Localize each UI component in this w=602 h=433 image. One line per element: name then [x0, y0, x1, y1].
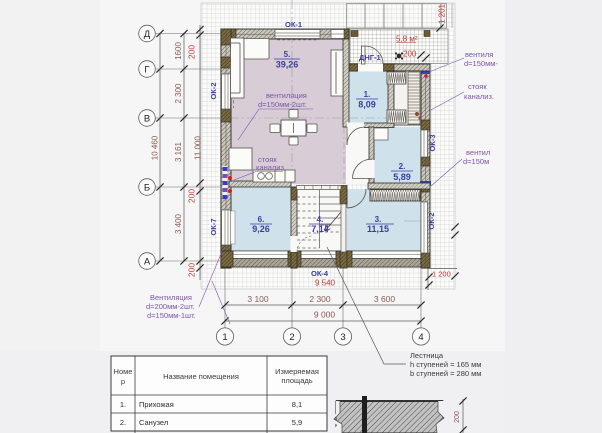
svg-text:Д: Д [144, 29, 151, 40]
svg-text:Название помещения: Название помещения [163, 372, 239, 381]
svg-text:4: 4 [418, 332, 423, 343]
svg-text:3.: 3. [375, 215, 382, 224]
svg-text:Б: Б [144, 183, 150, 194]
svg-text:9 540: 9 540 [315, 279, 336, 288]
svg-text:d=150мм-2шт.: d=150мм-2шт. [258, 100, 307, 109]
svg-text:200: 200 [454, 411, 461, 423]
svg-text:Санузел: Санузел [139, 418, 168, 427]
svg-text:2: 2 [289, 332, 294, 343]
svg-text:9 000: 9 000 [314, 310, 336, 320]
svg-text:1600: 1600 [174, 42, 183, 60]
svg-text:В: В [144, 114, 150, 125]
svg-text:ОК-7: ОК-7 [209, 218, 218, 235]
svg-text:1 200: 1 200 [432, 270, 451, 279]
svg-text:8,09: 8,09 [358, 100, 376, 110]
svg-text:3 400: 3 400 [174, 213, 183, 234]
svg-text:ОК-3: ОК-3 [428, 134, 437, 151]
svg-text:стояк: стояк [468, 82, 487, 91]
svg-text:10 460: 10 460 [151, 135, 160, 160]
svg-text:d=150м: d=150м [463, 157, 489, 166]
svg-text:канализ.: канализ. [464, 92, 494, 101]
svg-text:канализ: канализ [256, 163, 284, 172]
svg-text:b ступеней = 280 мм: b ступеней = 280 мм [410, 369, 481, 378]
svg-text:Лестница: Лестница [410, 351, 444, 360]
svg-text:р: р [121, 377, 125, 386]
svg-text:2 300: 2 300 [309, 294, 331, 304]
svg-text:h ступеней = 165 мм: h ступеней = 165 мм [410, 360, 481, 369]
svg-text:Номе: Номе [114, 367, 133, 376]
svg-text:площадь: площадь [281, 376, 312, 385]
svg-text:ДНГ-1: ДНГ-1 [359, 53, 381, 62]
svg-text:Г: Г [144, 65, 149, 76]
svg-text:1.: 1. [120, 400, 126, 409]
svg-text:ОК-2: ОК-2 [427, 212, 436, 229]
svg-text:2 300: 2 300 [174, 83, 183, 104]
svg-text:39,26: 39,26 [276, 60, 299, 70]
svg-text:ОК-4: ОК-4 [311, 269, 329, 278]
svg-text:200: 200 [187, 263, 197, 277]
svg-text:5,9: 5,9 [292, 418, 302, 427]
svg-text:6.: 6. [258, 215, 265, 224]
svg-text:2.: 2. [120, 418, 126, 427]
svg-text:1 201: 1 201 [438, 3, 447, 24]
svg-text:1: 1 [222, 332, 227, 343]
svg-text:вентил: вентил [466, 148, 490, 157]
svg-text:5.: 5. [284, 50, 291, 59]
svg-text:2.: 2. [399, 162, 406, 171]
svg-text:d=150мм-: d=150мм- [464, 59, 498, 68]
svg-text:5,89: 5,89 [393, 172, 411, 182]
svg-text:ОК-1: ОК-1 [285, 20, 302, 29]
svg-text:9,26: 9,26 [252, 224, 270, 234]
svg-text:5,8 м²: 5,8 м² [396, 35, 418, 44]
svg-text:Измеряемая: Измеряемая [275, 367, 319, 376]
svg-text:вентиляция: вентиляция [266, 91, 307, 100]
svg-text:Вентиляция: Вентиляция [150, 293, 192, 302]
svg-text:200: 200 [187, 189, 197, 203]
svg-text:вентиля: вентиля [465, 50, 493, 59]
svg-text:3 161: 3 161 [174, 141, 183, 162]
svg-text:200: 200 [403, 50, 417, 59]
svg-text:11 000: 11 000 [194, 136, 203, 160]
svg-text:11,15: 11,15 [367, 224, 389, 234]
svg-text:d=150мм-1шт.: d=150мм-1шт. [147, 311, 196, 320]
svg-text:8,1: 8,1 [292, 400, 302, 409]
svg-text:4.: 4. [317, 215, 324, 224]
svg-text:Прихожая: Прихожая [139, 400, 174, 409]
svg-text:А: А [144, 257, 151, 268]
svg-text:7,14: 7,14 [311, 224, 329, 234]
svg-text:3: 3 [340, 332, 345, 343]
svg-text:1.: 1. [364, 90, 371, 99]
svg-text:ОК-2: ОК-2 [209, 82, 218, 99]
svg-text:3 100: 3 100 [247, 294, 269, 304]
svg-text:3 600: 3 600 [374, 294, 396, 304]
svg-text:200: 200 [187, 45, 197, 59]
svg-text:d=200мм-2шт.: d=200мм-2шт. [146, 302, 195, 311]
